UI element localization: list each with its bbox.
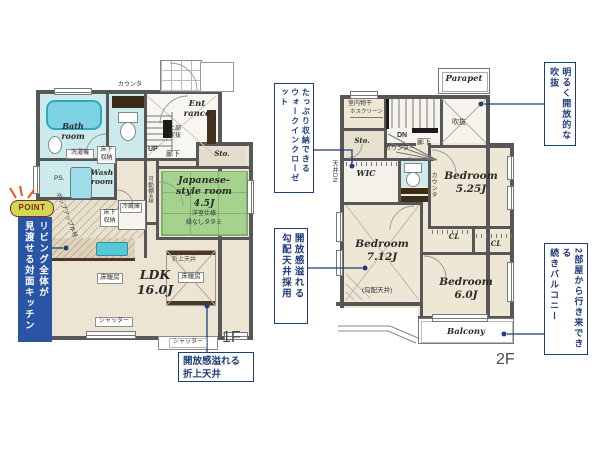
shutter-bottom-label: シャッター <box>169 338 207 348</box>
point-spark-icon <box>10 186 34 198</box>
closet2-label: CL <box>486 240 506 248</box>
japanese-room-note1: 洋室仕様 <box>182 211 226 218</box>
floor1-floor-label: 1F <box>222 328 241 347</box>
window <box>54 88 92 95</box>
entrance-canopy <box>200 62 234 92</box>
window <box>507 156 514 180</box>
closet1-label: CL <box>444 233 464 241</box>
bedroom1-label: Bedroom5.25J <box>442 170 500 195</box>
wall <box>420 202 423 318</box>
wall <box>344 202 423 205</box>
hallway-label-2f: 廊下 <box>417 139 431 147</box>
window <box>33 166 40 194</box>
wall <box>420 252 514 255</box>
counter-top-label: カウンタ <box>118 82 142 89</box>
floor2-floor-label: 2F <box>496 350 515 369</box>
stairs-dn-label: DN <box>397 132 407 140</box>
toilet-shelf-2f <box>401 196 428 202</box>
coffered-ceiling-label: 折上天井 <box>172 257 196 264</box>
wall <box>428 145 514 148</box>
wall <box>344 158 434 161</box>
balcony-callout: 2部屋から行き来できる 続きバルコニー <box>544 243 588 355</box>
washer-label: 洗濯機 <box>66 149 94 159</box>
hallway-label-1f: 廊下 <box>166 151 180 159</box>
japanese-room-label: Japanese- style room 4.5J <box>164 175 244 209</box>
coffered-ceiling-callout: 開放感溢れる 折上天井 <box>178 352 254 382</box>
window <box>507 262 514 302</box>
stairs-2f-floor <box>387 99 440 143</box>
wall <box>156 237 249 240</box>
window <box>86 331 136 339</box>
toilet-bowl-2f <box>406 172 420 187</box>
bath-room-label: Bathroom <box>52 122 94 141</box>
bedroom2-label: Bedroom7.12J <box>352 238 412 263</box>
wic-callout: たっぷり収納できる ウォークインクローゼット <box>274 83 314 193</box>
window <box>432 314 488 322</box>
floor-heating-center-label: 床暖房 <box>178 272 204 283</box>
parapet-label: Parapet <box>444 74 484 84</box>
window <box>507 186 514 210</box>
storage-label-2f: Sto. <box>348 137 376 145</box>
indoor-drying-label: 室内物干 <box>348 101 372 108</box>
closet2-hanger-pipe <box>476 234 514 238</box>
window <box>336 250 343 276</box>
indoor-drying-note: ホスクリーン <box>350 109 383 118</box>
wall <box>472 228 475 254</box>
wash-room-label: Washroom <box>86 168 118 186</box>
toilet-counter-1f <box>112 96 144 108</box>
wic-hanger-pipe <box>346 162 398 166</box>
wall <box>336 302 422 306</box>
upper-void-label: 上部吹抜 <box>168 126 182 140</box>
balcony-step-lines <box>338 326 418 343</box>
stairs-up-label: UP <box>148 146 158 154</box>
ceiling-dn-label: 天井DN <box>330 160 339 196</box>
entrance-porch-tiles <box>160 60 202 92</box>
bedroom2-note: (勾配天井) <box>362 287 392 295</box>
wall <box>196 142 199 168</box>
wall <box>156 166 249 169</box>
underfloor-storage-hall-label: 床下収納 <box>97 146 116 164</box>
point-text-box: リビング全体が 見渡せる対面キッチン <box>18 217 52 342</box>
window <box>247 180 254 214</box>
toilet-counter-2f <box>401 188 428 194</box>
floor-plan-canvas: カウンタ Bathroom Entrance 上部吹抜 UP 廊下 Sto. 洗… <box>0 0 600 449</box>
wall <box>440 99 443 145</box>
f2-outline-notch <box>334 308 418 324</box>
balcony-label: Balcony <box>440 327 492 337</box>
storage-label-1f: Sto. <box>208 150 236 158</box>
entrance-label: Entrance <box>178 99 216 119</box>
toilet-bowl-1f <box>120 122 136 141</box>
shutter-left-label: シャッター <box>95 317 133 327</box>
wall <box>144 94 147 158</box>
wall <box>428 226 514 229</box>
counter-long-label: カウンター <box>385 146 415 153</box>
ps-label: PS. <box>54 175 64 183</box>
bedroom3-label: Bedroom6.0J <box>436 276 496 301</box>
kitchen-sink <box>96 242 128 256</box>
fridge-label: 冷蔵庫 <box>120 203 142 213</box>
window <box>336 212 343 242</box>
wic-label: WIC <box>352 169 380 179</box>
underfloor-storage-kitchen-label: 床下収納 <box>100 209 119 227</box>
void-callout: 明るく開放的な 吹抜 <box>544 62 576 146</box>
movable-shelf-label: 可動棚4段 <box>146 176 154 218</box>
slope-ceiling-callout: 開放感溢れる 勾配天井採用 <box>274 228 308 324</box>
void-label: 吹抜 <box>452 119 466 127</box>
floor-heating-left-label: 床暖房 <box>97 273 123 284</box>
window <box>350 91 378 99</box>
point-badge: POINT <box>10 200 54 217</box>
counter-v-label: カウンタ <box>429 172 438 204</box>
wall <box>344 128 384 131</box>
japanese-room-note2: 縁なしタタミ <box>182 220 226 227</box>
ldk-label: LDK16.0J <box>128 267 182 297</box>
wall <box>156 161 159 240</box>
